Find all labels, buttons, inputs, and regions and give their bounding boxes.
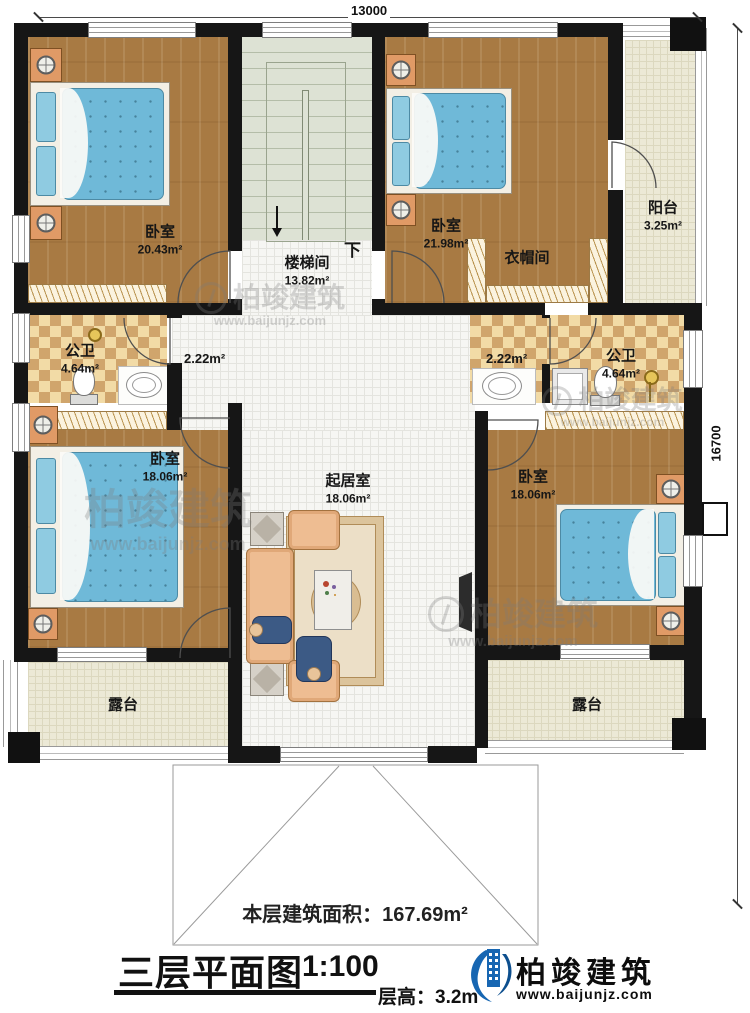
room-area: 3.25m²: [644, 218, 682, 234]
lamp-icon: [34, 615, 53, 634]
watermark: 柏竣建筑 www.baijunjz.com: [388, 596, 638, 650]
room-name: 露台: [108, 695, 138, 715]
plan-title: 三层平面图: [118, 944, 303, 996]
nightstand: [656, 474, 686, 504]
room-name: 起居室: [325, 471, 370, 491]
lamp-icon: [392, 61, 411, 80]
pillow: [36, 146, 56, 196]
room-label-bedroom-top-left: 卧室 20.43m²: [138, 222, 183, 257]
window: [12, 313, 30, 363]
watermark-name: 柏竣建筑: [470, 596, 598, 633]
cloakroom-wardrobe-east: [589, 238, 608, 303]
room-area: 18.06m²: [511, 487, 556, 503]
lamp-icon: [37, 56, 56, 75]
terrace-right-railing-south: [485, 740, 684, 754]
lamp-icon: [34, 416, 53, 435]
room-label-bedroom-right: 卧室 18.06m²: [511, 467, 556, 502]
wall-segment: [650, 645, 702, 660]
sink: [126, 372, 162, 398]
wall-segment: [372, 23, 385, 251]
nightstand: [386, 194, 416, 226]
pillow: [658, 556, 676, 598]
wall-living-west: [228, 403, 242, 748]
brand-url: www.baijunjz.com: [516, 986, 653, 1002]
pillow: [392, 142, 410, 186]
room-name: 卧室: [424, 216, 469, 236]
wall-segment: [428, 746, 477, 763]
room-label-bedroom-left: 卧室 18.06m²: [143, 449, 188, 484]
room-label-cloakroom: 衣帽间: [504, 248, 549, 268]
watermark-logo-icon: [542, 386, 572, 416]
room-label-bathroom-left: 公卫 4.64m²: [61, 341, 99, 376]
sink-basin: [132, 377, 156, 393]
wall-segment: [608, 37, 623, 140]
lamp-icon: [662, 480, 681, 499]
nightstand: [30, 206, 62, 240]
room-label-terrace-right: 露台: [572, 695, 602, 715]
plan-scale: 1:100: [302, 950, 379, 984]
nightstand: [386, 54, 416, 86]
watermark-url: www.baijunjz.com: [505, 416, 720, 430]
room-name: 卧室: [138, 222, 183, 242]
side-table: [250, 662, 284, 696]
coffee-table: [314, 570, 352, 630]
room-label-living-room: 起居室 18.06m²: [325, 471, 370, 506]
wall-segment: [542, 315, 550, 318]
floor-height-label: 层高：3.2m: [378, 982, 478, 1009]
wall-segment: [372, 303, 545, 315]
wall-living-east: [475, 411, 488, 748]
watermark-url: www.baijunjz.com: [388, 633, 638, 650]
vestibule-left-area: 2.22m²: [184, 351, 225, 366]
watermark: 柏竣建筑 www.baijunjz.com: [18, 486, 318, 555]
floor-plan: 卧室 20.43m² 楼梯间 13.82m² 下 卧室 21.98m² 衣帽间 …: [0, 0, 750, 1013]
terrace-left-railing-south: [28, 746, 233, 760]
cloakroom-wardrobe-south: [486, 285, 589, 303]
room-name: 衣帽间: [504, 248, 549, 268]
window: [12, 403, 30, 452]
nightstand: [30, 48, 62, 82]
room-area: 4.64m²: [602, 366, 640, 382]
room-name: 公卫: [61, 341, 99, 361]
room-area: 4.64m²: [61, 361, 99, 377]
lamp-icon: [37, 214, 56, 233]
window: [88, 22, 196, 38]
watermark-logo-icon: [195, 282, 227, 314]
window: [683, 535, 703, 587]
balcony-floor: [625, 40, 695, 303]
watermark: 柏竣建筑 www.baijunjz.com: [505, 386, 720, 430]
wall-segment: [14, 648, 57, 662]
room-label-balcony: 阳台 3.25m²: [644, 198, 682, 233]
exterior-ledge: [702, 502, 728, 536]
window-living-south: [280, 747, 428, 762]
room-name: 阳台: [644, 198, 682, 218]
room-name: 公卫: [602, 346, 640, 366]
watermark: 柏竣建筑 www.baijunjz.com: [150, 282, 390, 329]
room-area: 18.06m²: [325, 491, 370, 507]
room-area: 21.98m²: [424, 236, 469, 252]
watermark-logo-icon: [428, 596, 464, 632]
hall-floor: [172, 315, 475, 430]
person-head: [249, 623, 263, 637]
room-name: 卧室: [143, 449, 188, 469]
balcony-railing-east: [695, 28, 707, 306]
cloakroom-wardrobe-west: [467, 238, 486, 303]
dimension-width-label: 13000: [348, 3, 390, 18]
ceiling-lamp: [88, 328, 102, 342]
room-label-bedroom-top-right: 卧室 21.98m²: [424, 216, 469, 251]
side-table-top: [253, 665, 281, 693]
wall-segment: [228, 746, 280, 763]
lamp-icon: [662, 612, 681, 631]
window: [683, 330, 703, 388]
pillow: [36, 92, 56, 142]
sofa: [246, 548, 294, 664]
room-name: 露台: [572, 695, 602, 715]
watermark-url: www.baijunjz.com: [150, 314, 390, 329]
column-bottom-right: [672, 718, 706, 750]
window: [57, 647, 147, 662]
stair-down-label: 下: [344, 236, 361, 261]
dimension-line-right: [737, 28, 738, 905]
room-name: 卧室: [511, 467, 556, 487]
watermark-name: 柏竣建筑: [233, 282, 345, 314]
stair-down-arrow-head: [272, 228, 282, 237]
nightstand: [28, 406, 58, 444]
window: [262, 22, 352, 38]
closet-bedroom-top-left: [28, 284, 167, 303]
stair-down-arrow: [276, 206, 278, 230]
person-head: [307, 667, 321, 681]
stair-divider: [302, 90, 309, 240]
pillow: [658, 512, 676, 554]
window: [12, 215, 30, 263]
lamp-icon: [392, 201, 411, 220]
window: [428, 22, 558, 38]
watermark-name: 柏竣建筑: [578, 386, 682, 416]
brand-logo-icon: [466, 944, 512, 1006]
vestibule-right-area: 2.22m²: [486, 351, 527, 366]
wall-segment: [147, 648, 242, 662]
flower-vase: [323, 581, 329, 587]
wall-segment: [167, 363, 182, 430]
wall-segment: [608, 190, 623, 303]
watermark-name: 柏竣建筑: [84, 486, 252, 533]
nightstand: [656, 606, 686, 636]
towel-stand: [644, 370, 659, 385]
room-name: 楼梯间: [284, 253, 329, 273]
pillow: [392, 96, 410, 140]
room-label-terrace-left: 露台: [108, 695, 138, 715]
wall-segment: [228, 23, 242, 251]
nightstand: [28, 608, 58, 640]
floor-area-note: 本层建筑面积：167.69m²: [160, 898, 550, 927]
watermark-url: www.baijunjz.com: [18, 534, 318, 555]
title-underline: [114, 990, 376, 995]
room-area: 18.06m²: [143, 469, 188, 485]
column-bottom-left: [8, 732, 40, 763]
person-on-armchair: [296, 636, 332, 682]
person-on-sofa: [252, 616, 292, 644]
room-label-bathroom-right: 公卫 4.64m²: [602, 346, 640, 381]
room-area: 20.43m²: [138, 242, 183, 258]
